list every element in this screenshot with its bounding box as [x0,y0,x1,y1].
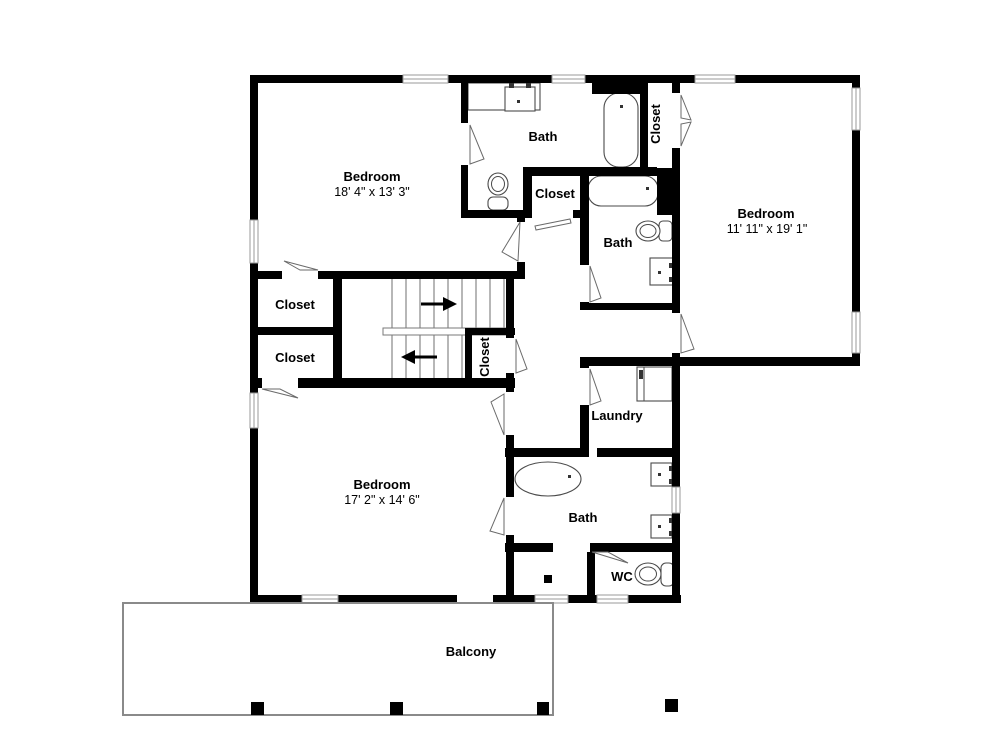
sink-icon [650,258,674,285]
wall-segment [506,271,514,338]
wall-segment [597,448,673,457]
plumbing-chase [657,168,673,215]
door-swing [284,261,318,270]
wall-segment [318,271,525,279]
wall-segment [672,513,680,603]
toilet-icon [635,563,674,586]
wall-segment [506,373,514,392]
room-dims-bedroom-bottom: 17' 2" x 14' 6" [344,493,420,507]
wall-segment [580,357,860,366]
room-label-bedroom-right: Bedroom [737,206,794,221]
wall-segment [250,271,282,279]
door-swing [470,125,484,164]
porch-post [665,699,678,712]
balcony-outline [123,603,553,715]
wall-segment [338,595,457,603]
window [535,595,568,603]
wall-segment [461,83,468,123]
bathtub-icon [515,462,581,496]
room-label-bath-middle: Bath [604,235,633,250]
toilet-icon [636,221,672,241]
room-label-closet-tub: Closet [648,103,663,143]
door-swing [681,314,694,353]
room-dims-bedroom-right: 11' 11" x 19' 1" [727,222,808,236]
wall-segment [505,543,553,552]
window [695,75,735,83]
wall-segment [250,75,258,220]
stairs-up-arrow-icon [421,297,457,311]
window [302,595,338,603]
sink-icon [651,463,674,486]
faucet-dot [509,83,514,88]
wall-segment [250,75,403,83]
room-label-closet-stairs: Closet [477,336,492,376]
room-dims-bedroom-top-left: 18' 4" x 13' 3" [334,185,410,199]
door-swing [592,552,628,563]
fixtures [383,83,674,586]
wall-segment [517,212,525,222]
door-swing [516,339,527,373]
wall-segment [505,448,580,457]
window [250,393,258,428]
bifold-door-swing [681,95,691,120]
toilet-icon [488,173,508,210]
wall-segment [523,167,657,176]
faucet-dot [526,83,531,88]
wall-segment [590,543,673,552]
wall-segment [852,75,860,88]
room-label-bath-bottom: Bath [569,510,598,525]
bathtub-icon [604,93,638,167]
walls [250,75,860,603]
window [250,220,258,263]
room-label-closet-hall: Closet [535,186,575,201]
room-label-balcony: Balcony [446,644,497,659]
wall-segment [250,378,262,388]
sink-icon [505,87,535,111]
door-swing [502,222,520,261]
window [852,88,860,130]
wall-segment [298,378,515,388]
wall-segment [640,83,648,169]
wall-segment [333,271,342,388]
wall-segment [672,353,680,487]
room-label-bedroom-bottom: Bedroom [353,477,410,492]
wall-segment [250,595,302,603]
balcony-post [537,702,549,715]
door-swing [491,394,504,435]
window [852,312,860,353]
room-label-bath-top: Bath [529,129,558,144]
wall-segment [250,428,258,603]
door-swing [535,219,571,230]
drain-dot [517,100,520,103]
balcony-post [390,702,403,715]
wall-segment [852,130,860,312]
room-label-bedroom-top-left: Bedroom [343,169,400,184]
balcony-post [251,702,264,715]
washer-icon [637,367,672,401]
window [672,487,680,513]
bifold-door-swing [681,122,691,146]
wall-segment [506,435,514,497]
wall-segment [580,303,680,310]
wall-segment [672,148,680,313]
bathtub-icon [588,176,658,206]
wall-segment [448,75,552,83]
room-label-closet-left-upper: Closet [275,297,315,312]
window [403,75,448,83]
room-label-wc: WC [611,569,633,584]
window [552,75,585,83]
floor-plan: Bedroom 18' 4" x 13' 3" Bath Closet Clos… [0,0,1000,750]
wall-segment [250,327,342,335]
balcony [123,603,678,715]
floor-plan-page: Bedroom 18' 4" x 13' 3" Bath Closet Clos… [0,0,1000,750]
wall-segment [465,328,472,388]
room-label-closet-left-lower: Closet [275,350,315,365]
door-swing [590,369,601,405]
wall-segment [461,165,468,212]
door-swing [262,389,298,398]
wall-segment [735,75,860,83]
plumbing-chase [592,81,640,94]
wall-segment [580,167,589,265]
sink-icon [651,515,674,538]
wall-segment [580,405,589,457]
door-swing [590,266,601,302]
room-label-laundry: Laundry [591,408,643,423]
shower-drain-icon [544,575,552,583]
window [597,595,628,603]
wall-segment [523,167,532,218]
door-swing [490,498,504,535]
wall-segment [587,552,595,603]
wall-segment [672,83,680,93]
